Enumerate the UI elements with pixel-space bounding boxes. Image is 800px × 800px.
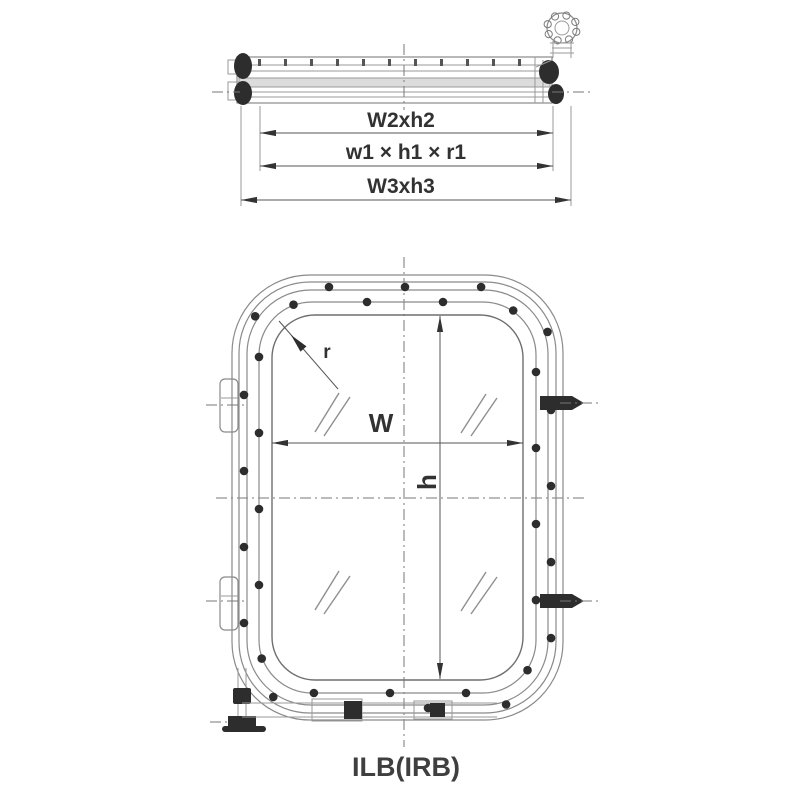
dimension-w1h1r1: w1 × h1 × r1 [260,141,553,166]
frame-profile-bar [237,57,552,103]
swing-clamp-lower-right [540,594,599,608]
frame-bolt [255,581,264,590]
frame-bolt [310,689,319,698]
frame-bolt [240,619,249,628]
bottom-hinge-arm [210,668,497,732]
frame-bolt [251,312,260,321]
retainer-tick [492,59,495,66]
retainer-tick [362,59,365,66]
corner-radius-leader: r [279,321,338,389]
hinge-bracket-upper-left [206,379,244,432]
wingnut-knob [536,12,580,67]
frame-bolt [543,328,552,337]
retainer-tick [518,59,521,66]
retainer-tick [388,59,391,66]
frame-bolt [547,634,556,643]
wingnut-scallop-edge [544,12,580,44]
retainer-tick [284,59,287,66]
frame-bolt [240,543,249,552]
frame-bolt [462,689,471,698]
dim-label-w2h2: W2xh2 [367,109,435,132]
frame-bolt [240,391,249,400]
retainer-tick [258,59,261,66]
frame-bolt [289,300,298,309]
marine-window-technical-drawing: W2xh2 w1 × h1 × r1 W3xh3 [0,0,800,800]
dimension-w3h3: W3xh3 [241,175,571,200]
frame-bolt [532,444,541,453]
frame-bolt [325,283,334,292]
swing-clamp-upper-right [540,396,599,410]
frame-bolt [502,700,511,709]
frame-bolt [509,306,518,315]
dim-label-w3h3: W3xh3 [367,175,435,198]
dimension-w2h2: W2xh2 [260,109,553,133]
frame-bolt [547,558,556,567]
frame-bolt [401,283,410,292]
section-clamp-right [535,12,592,104]
retainer-tick [466,59,469,66]
frame-bolt [532,368,541,377]
front-view: W h r [206,257,599,747]
drawing-page: W2xh2 w1 × h1 × r1 W3xh3 [0,0,800,800]
dim-label-w1h1r1: w1 × h1 × r1 [345,141,467,164]
frame-bolt [532,596,541,605]
frame-bolt [477,283,486,292]
dim-label-height: h [412,474,442,490]
retainer-tick [310,59,313,66]
frame-bolt [255,429,264,438]
dim-label-radius: r [323,342,331,363]
dim-label-width: W [369,408,394,438]
retainer-tick [336,59,339,66]
frame-bolt [523,666,532,675]
dimension-width: W [272,408,523,443]
frame-bolt [240,467,249,476]
figure-caption: ILB(IRB) [352,752,460,782]
glass-hatch-marks [315,393,497,614]
frame-bolt [257,654,266,663]
retainer-tick [440,59,443,66]
frame-bolt [255,353,264,362]
frame-bolt [269,693,278,702]
frame-bolt [363,298,372,307]
frame-bolt [532,520,541,529]
retainer-tick [414,59,417,66]
frame-bolt [386,689,395,698]
frame-bolt [547,482,556,491]
frame-bolt [255,505,264,514]
cross-section-view: W2xh2 w1 × h1 × r1 W3xh3 [212,12,592,206]
frame-bolt [439,298,448,307]
hinge-bracket-lower-left [206,577,244,630]
